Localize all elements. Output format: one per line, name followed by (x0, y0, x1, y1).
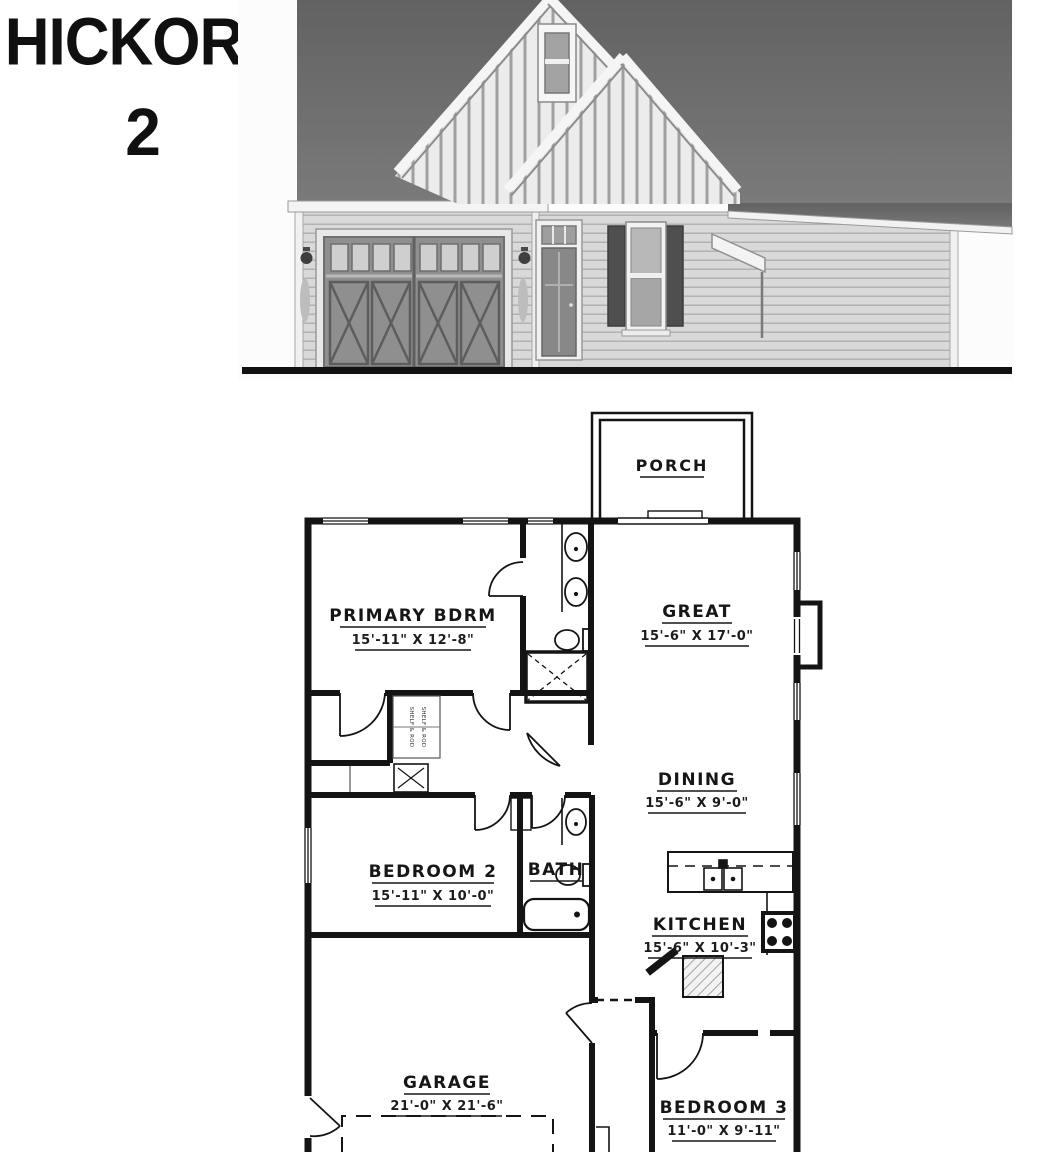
bath-door-arc (532, 795, 565, 828)
window-top-2 (463, 515, 508, 527)
label-kitchen: KITCHEN 15'-6" X 10'-3" (643, 915, 756, 958)
svg-text:GREAT: GREAT (662, 602, 732, 622)
primary-door-arc (473, 693, 510, 730)
porch-step (648, 511, 702, 518)
door-handle (569, 303, 573, 307)
range-icon (763, 913, 795, 951)
fireplace-window-lines (795, 619, 800, 653)
toilet-icon (555, 629, 592, 651)
svg-text:15'-11" X 10'-0": 15'-11" X 10'-0" (372, 889, 495, 904)
garage-service-door-arc (310, 1098, 340, 1136)
windows (302, 515, 803, 883)
fireplace-bump (799, 603, 820, 667)
attic-window (538, 24, 576, 102)
closet-note-2: SHELF & ROD (420, 707, 426, 748)
pantry-hatch (683, 956, 723, 997)
svg-text:15'-11" X 12'-8": 15'-11" X 12'-8" (352, 633, 475, 648)
bedroom2-door-arc (475, 795, 510, 830)
svg-text:11'-0" X 9'-11": 11'-0" X 9'-11" (667, 1124, 780, 1139)
primary-bath-fixtures (526, 524, 592, 702)
svg-text:15'-6" X 9'-0": 15'-6" X 9'-0" (645, 796, 749, 811)
label-porch: PORCH (636, 456, 709, 477)
window-dining-right (791, 773, 803, 825)
hall-closet (596, 1127, 609, 1152)
svg-text:21'-0" X 21'-6": 21'-0" X 21'-6" (390, 1099, 503, 1114)
label-garage: GARAGE 21'-0" X 21'-6" (390, 1073, 503, 1116)
closet-note-1: SHELF & ROD (408, 707, 414, 748)
window-top-1 (323, 515, 368, 527)
linen-cabinet (511, 798, 531, 830)
svg-text:PORCH: PORCH (636, 456, 709, 475)
door-arcs (310, 562, 703, 1136)
ground-line (242, 367, 1012, 374)
label-bedroom2: BEDROOM 2 15'-11" X 10'-0" (369, 862, 498, 906)
water-heater-icon (394, 764, 428, 792)
front-elevation-rendering (238, 0, 1014, 380)
tub-icon (524, 899, 589, 930)
closet-shelving: SHELF & ROD SHELF & ROD (393, 696, 440, 758)
svg-text:GARAGE: GARAGE (403, 1073, 491, 1093)
svg-text:15'-6" X 17'-0": 15'-6" X 17'-0" (640, 629, 753, 644)
svg-text:PRIMARY BDRM: PRIMARY BDRM (329, 606, 496, 626)
kitchen-island (668, 852, 793, 892)
garage-dashed-outline (342, 1116, 553, 1152)
window-bath-top (528, 515, 553, 527)
window-sill (622, 330, 670, 336)
closet-door-arc (340, 693, 385, 736)
label-bath: BATH (528, 860, 585, 881)
garage-door (316, 229, 512, 370)
label-primary: PRIMARY BDRM 15'-11" X 12'-8" (329, 606, 496, 650)
svg-text:BEDROOM 3: BEDROOM 3 (660, 1098, 789, 1118)
bedroom3-door-arc (657, 1033, 703, 1079)
label-bedroom3: BEDROOM 3 11'-0" X 9'-11" (660, 1098, 789, 1141)
floor-plan: SHELF & ROD SHELF & ROD (290, 400, 835, 1152)
garage-hall-door-arc (566, 1003, 592, 1043)
porch-entry-sill (618, 511, 708, 524)
window-great-right-1 (791, 552, 803, 590)
svg-text:15'-6" X 10'-3": 15'-6" X 10'-3" (643, 941, 756, 956)
window-bedroom2-left (302, 828, 314, 883)
linen-angled-door (527, 733, 560, 766)
corner-board-right (950, 212, 958, 368)
window-great-right-2 (791, 683, 803, 720)
svg-text:BATH: BATH (528, 860, 585, 880)
front-window-with-shutters (608, 222, 683, 336)
front-door (536, 220, 582, 360)
label-dining: DINING 15'-6" X 9'-0" (645, 770, 749, 813)
svg-text:DINING: DINING (658, 770, 736, 790)
svg-text:BEDROOM 2: BEDROOM 2 (369, 862, 498, 882)
shutter-left (608, 226, 625, 326)
primary-bath-door-arc (489, 562, 523, 596)
room-labels: PORCH PRIMARY BDRM 15'-11" X 12'-8" GREA… (329, 456, 788, 1141)
svg-text:KITCHEN: KITCHEN (653, 915, 747, 935)
label-great: GREAT 15'-6" X 17'-0" (640, 602, 753, 646)
shutter-right (666, 226, 683, 326)
door-transom-window (542, 226, 576, 244)
